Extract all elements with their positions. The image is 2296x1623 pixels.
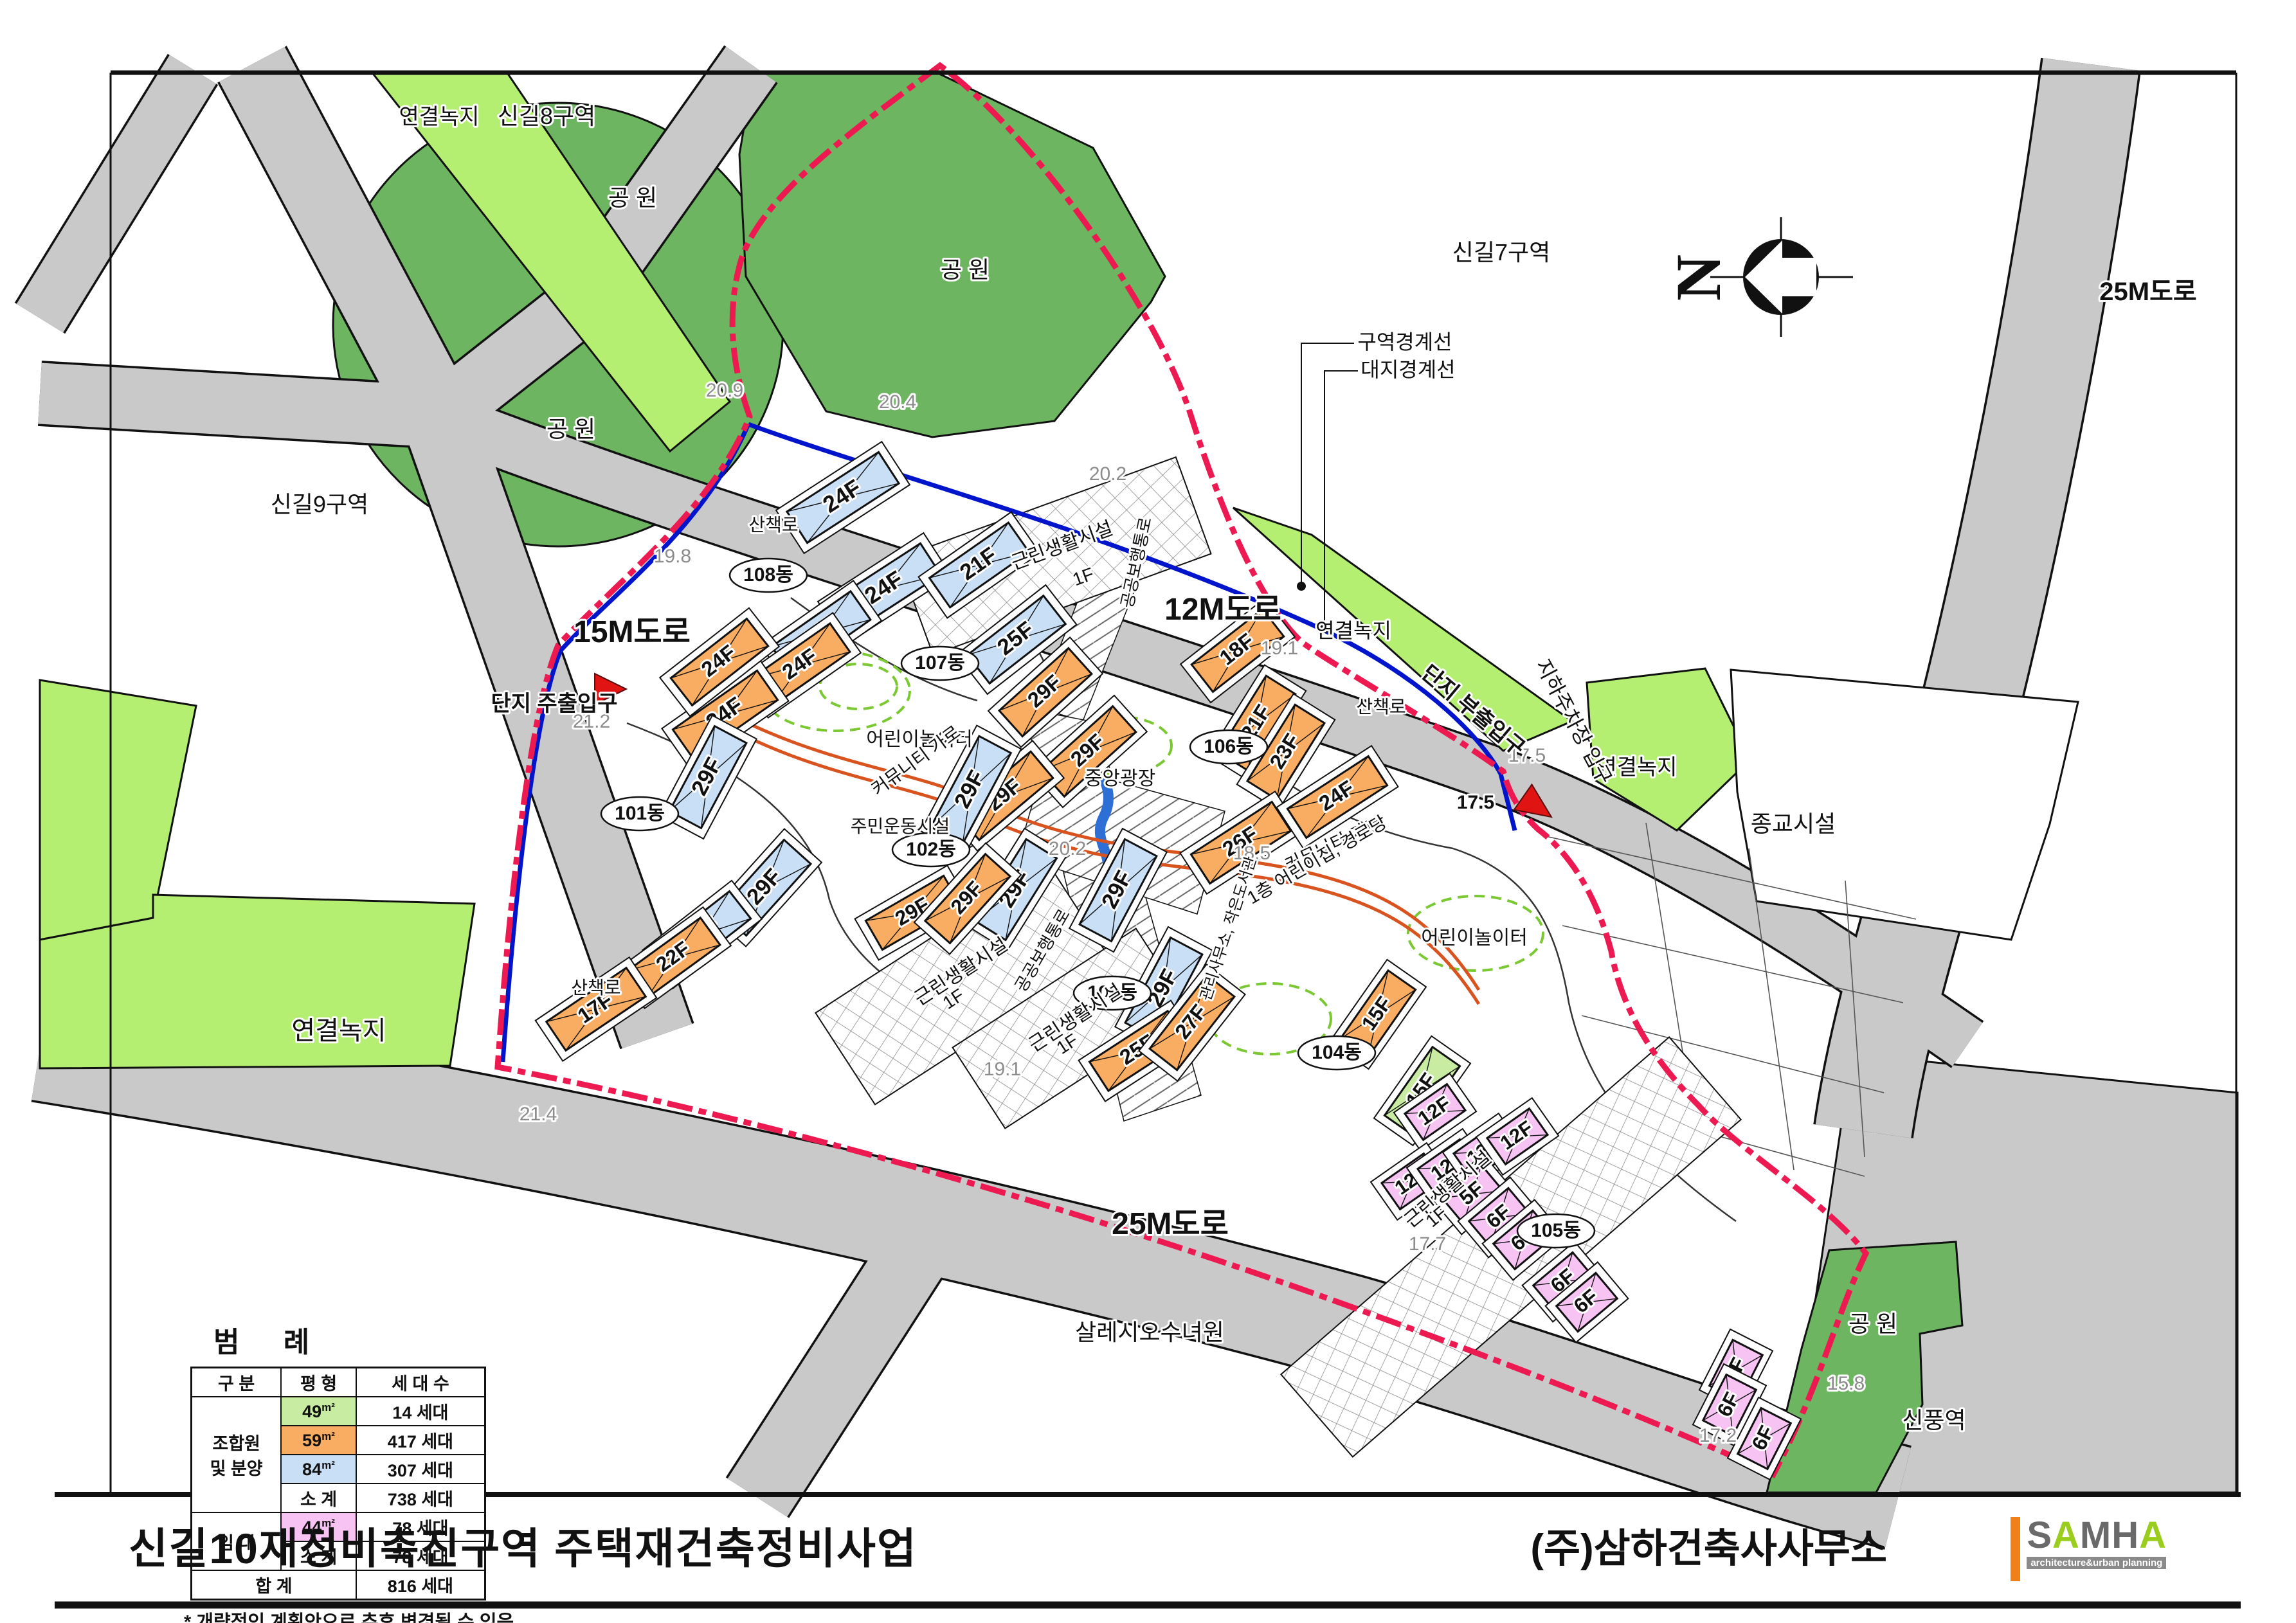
facility-label: 신풍역 — [1902, 1407, 1966, 1433]
building-number-tag: 104동 — [1298, 1036, 1375, 1070]
company-name: (주)삼하건축사사무소 — [1530, 1516, 1887, 1574]
site-plan-page: 24F24F24F24F24F21F25F29F29F29F29F29F27F2… — [0, 0, 2296, 1623]
legend-swatch-84: 84m² — [281, 1455, 356, 1484]
park-label: 공 원 — [941, 256, 990, 283]
building-number-text: 106동 — [1204, 736, 1254, 757]
elevation-label: 17.5 — [1457, 792, 1494, 813]
logo-wordmark: SAMHA — [2027, 1517, 2167, 1554]
title-bar: 신길10재정비촉진구역 주택재건축정비사업 (주)삼하건축사사무소 SAMHA … — [55, 1503, 2241, 1599]
amenity-label: 어린이놀이터 — [1421, 928, 1528, 949]
green-label: 연결녹지 — [291, 1017, 386, 1045]
road-label: 12M도로 — [1164, 593, 1281, 627]
legend-note: * 개략적인 계획안으로 추후 변경될 수 있음. — [184, 1607, 486, 1623]
district-label: 신길8구역 — [498, 103, 596, 129]
building-number-tag: 102동 — [892, 833, 970, 866]
legend-swatch-59: 59m² — [281, 1426, 356, 1455]
logo-subtitle: architecture&urban planning — [2027, 1557, 2166, 1569]
elevation-label: 20.4 — [879, 391, 916, 413]
boundary-label: 대지경계선 — [1360, 358, 1455, 381]
entrance-label: 단지 주출입구 — [491, 692, 617, 716]
building-number-text: 105동 — [1531, 1220, 1581, 1241]
samha-logo: SAMHA architecture&urban planning — [2011, 1517, 2167, 1581]
amenity-label: 산책로 — [1356, 697, 1406, 717]
elevation-label: 21.4 — [520, 1104, 557, 1125]
legend-count-84: 307 세대 — [356, 1455, 485, 1484]
north-arrow-icon: N — [1663, 217, 1853, 337]
amenity-label: 산책로 — [748, 515, 798, 535]
facility-label: 종교시설 — [1751, 811, 1836, 837]
elevation-label: 19.1 — [984, 1059, 1021, 1080]
legend-count-49: 14 세대 — [356, 1397, 485, 1426]
building-number-text: 102동 — [906, 839, 956, 860]
road-label: 15M도로 — [574, 615, 691, 649]
amenity-label: 산책로 — [571, 978, 620, 998]
legend-title: 범 례 — [213, 1319, 486, 1360]
boundary-label: 구역경계선 — [1357, 330, 1452, 354]
building-number-tag: 105동 — [1517, 1214, 1595, 1248]
legend-header-households: 세 대 수 — [356, 1368, 485, 1397]
amenity-label: 주민운동시설 — [851, 816, 950, 836]
building-number-text: 101동 — [615, 803, 665, 824]
green-label: 연결녹지 — [399, 105, 479, 129]
legend-group-members: 조합원 및 분양 — [192, 1397, 282, 1512]
building-number-text: 104동 — [1312, 1042, 1362, 1063]
road-label: 25M도로 — [2099, 278, 2196, 306]
building-number-tag: 101동 — [601, 797, 678, 830]
legend-header-category: 구 분 — [192, 1368, 282, 1397]
park-label: 공 원 — [547, 416, 595, 442]
logo-accent-bar — [2011, 1517, 2020, 1581]
green-label: 연결녹지 — [1315, 619, 1391, 642]
road-label: 25M도로 — [1112, 1207, 1229, 1241]
legend-swatch-49: 49m² — [281, 1397, 356, 1426]
elevation-label: 17.2 — [1699, 1425, 1737, 1446]
park-label: 공 원 — [1849, 1311, 1897, 1337]
religious-facility-parcel — [1731, 670, 2078, 940]
building-number-text: 108동 — [743, 564, 793, 586]
legend-header-size: 평 형 — [281, 1368, 356, 1397]
elevation-label: 20.9 — [706, 380, 743, 401]
building-number-tag: 107동 — [901, 647, 979, 680]
elevation-label: 19.8 — [654, 546, 691, 567]
amenity-label: 중앙광장 — [1085, 768, 1155, 789]
elevation-label: 20.2 — [1049, 838, 1086, 859]
building-number-tag: 108동 — [730, 559, 807, 592]
building-number-tag: 106동 — [1190, 730, 1267, 764]
district-label: 신길9구역 — [271, 491, 369, 517]
elevation-label: 15.8 — [1827, 1373, 1865, 1394]
elevation-label: 17.7 — [1409, 1233, 1446, 1255]
park-label: 공 원 — [608, 184, 657, 211]
project-title: 신길10재정비촉진구역 주택재건축정비사업 — [129, 1514, 917, 1576]
legend-count-59: 417 세대 — [356, 1426, 485, 1455]
facility-label: 살레시오수녀원 — [1075, 1319, 1224, 1345]
district-label: 신길7구역 — [1452, 239, 1551, 265]
elevation-label: 19.1 — [1261, 638, 1298, 659]
elevation-label: 20.2 — [1089, 463, 1126, 485]
building-number-text: 107동 — [915, 652, 965, 674]
